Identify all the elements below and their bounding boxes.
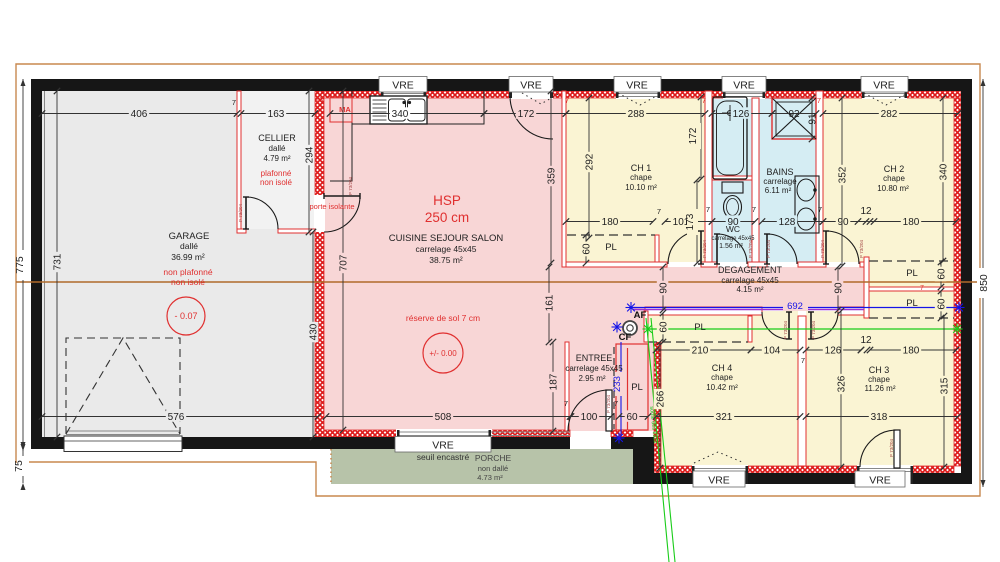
- svg-text:12: 12: [860, 335, 872, 346]
- svg-text:707: 707: [339, 254, 350, 271]
- svg-text:13: 13: [314, 400, 322, 409]
- svg-text:60: 60: [937, 298, 948, 310]
- svg-text:VRE: VRE: [869, 475, 891, 487]
- svg-text:VRE: VRE: [873, 80, 895, 92]
- svg-text:P 73/204: P 73/204: [889, 439, 894, 457]
- svg-text:plafonné: plafonné: [261, 169, 292, 178]
- svg-text:1.56 m²: 1.56 m²: [719, 243, 743, 250]
- svg-text:DEGAGEMENT: DEGAGEMENT: [718, 265, 783, 275]
- svg-text:7: 7: [920, 285, 924, 292]
- svg-text:P 73/204: P 73/204: [748, 240, 753, 258]
- svg-text:294: 294: [305, 146, 316, 163]
- svg-text:282: 282: [881, 109, 898, 120]
- svg-text:60: 60: [626, 412, 638, 423]
- svg-text:128: 128: [779, 217, 796, 228]
- svg-text:CUISINE SEJOUR SALON: CUISINE SEJOUR SALON: [389, 233, 504, 244]
- svg-text:7: 7: [565, 96, 569, 105]
- svg-text:430: 430: [309, 323, 320, 340]
- svg-text:P 73/204: P 73/204: [238, 204, 243, 222]
- svg-text:carrelage 45x45: carrelage 45x45: [416, 244, 477, 254]
- svg-text:288: 288: [628, 109, 645, 120]
- svg-text:173: 173: [685, 213, 696, 230]
- svg-text:13: 13: [315, 95, 323, 104]
- svg-text:318: 318: [871, 412, 888, 423]
- svg-text:321: 321: [716, 412, 733, 423]
- svg-text:11.26 m²: 11.26 m²: [865, 384, 896, 393]
- svg-text:60: 60: [937, 268, 948, 280]
- svg-text:352: 352: [838, 166, 849, 183]
- svg-text:PL: PL: [906, 268, 918, 279]
- svg-text:P 73/204: P 73/204: [859, 240, 864, 258]
- svg-text:6.11 m²: 6.11 m²: [765, 186, 792, 195]
- svg-text:non isolé: non isolé: [260, 178, 293, 187]
- svg-text:315: 315: [940, 377, 951, 394]
- svg-text:172: 172: [688, 127, 699, 144]
- svg-text:340: 340: [392, 109, 409, 120]
- svg-text:P 73/204: P 73/204: [783, 321, 788, 339]
- svg-text:P 73/204: P 73/204: [606, 395, 611, 413]
- svg-text:172: 172: [518, 109, 535, 120]
- svg-text:non dallé: non dallé: [478, 464, 508, 473]
- svg-text:VRE: VRE: [708, 475, 730, 487]
- svg-text:CELLIER: CELLIER: [258, 133, 296, 143]
- svg-text:P 73/204: P 73/204: [820, 240, 825, 258]
- svg-text:7: 7: [770, 96, 774, 105]
- svg-text:MA: MA: [339, 105, 351, 114]
- svg-text:4.15 m²: 4.15 m²: [736, 285, 763, 294]
- svg-text:266: 266: [656, 390, 667, 407]
- svg-text:BAINS: BAINS: [766, 167, 793, 177]
- svg-text:2.95 m²: 2.95 m²: [578, 374, 605, 383]
- svg-text:180: 180: [903, 346, 920, 357]
- svg-text:P 73/204: P 73/204: [811, 321, 816, 339]
- svg-text:75: 75: [13, 460, 25, 472]
- svg-text:CH 2: CH 2: [884, 164, 905, 174]
- svg-text:508: 508: [435, 412, 452, 423]
- svg-text:seuil encastré: seuil encastré: [417, 452, 470, 462]
- svg-text:VRE: VRE: [520, 80, 542, 92]
- svg-text:7: 7: [752, 205, 756, 214]
- svg-text:7: 7: [702, 96, 706, 105]
- svg-text:HSP: HSP: [433, 193, 461, 208]
- svg-text:chape: chape: [711, 373, 733, 382]
- svg-text:réserve de sol 7 cm: réserve de sol 7 cm: [406, 313, 480, 323]
- svg-text:10.42 m²: 10.42 m²: [706, 383, 738, 392]
- svg-text:non isolé: non isolé: [171, 277, 205, 287]
- svg-text:100: 100: [581, 412, 598, 423]
- svg-text:7: 7: [818, 205, 822, 214]
- svg-text:692: 692: [787, 301, 803, 312]
- svg-text:chape: chape: [630, 173, 652, 182]
- svg-text:PL: PL: [694, 322, 706, 333]
- svg-text:CH 4: CH 4: [712, 363, 733, 373]
- svg-text:91: 91: [808, 113, 819, 125]
- svg-text:ENTREE: ENTREE: [576, 353, 613, 363]
- svg-text:850: 850: [978, 274, 990, 292]
- svg-text:38.75 m²: 38.75 m²: [429, 255, 463, 265]
- svg-text:92: 92: [788, 109, 800, 120]
- svg-text:chape: chape: [883, 174, 905, 183]
- svg-text:250 cm: 250 cm: [425, 210, 469, 225]
- svg-text:326: 326: [837, 375, 848, 392]
- svg-text:292: 292: [585, 153, 596, 170]
- svg-text:210: 210: [692, 346, 709, 357]
- svg-text:7: 7: [706, 205, 710, 214]
- svg-text:126: 126: [825, 346, 842, 357]
- svg-text:P 73/204: P 73/204: [766, 240, 771, 258]
- svg-text:163: 163: [268, 109, 285, 120]
- svg-text:12: 12: [860, 206, 872, 217]
- svg-text:VRE: VRE: [733, 80, 755, 92]
- svg-text:chape: chape: [868, 375, 890, 384]
- svg-text:60: 60: [659, 321, 670, 333]
- svg-text:carrelage 45x45: carrelage 45x45: [565, 364, 623, 373]
- svg-text:10.10 m²: 10.10 m²: [625, 183, 657, 192]
- svg-text:carrelage: carrelage: [763, 177, 797, 186]
- svg-text:7: 7: [614, 399, 618, 408]
- svg-text:VRE: VRE: [392, 80, 414, 92]
- svg-text:359: 359: [547, 167, 558, 184]
- svg-text:187: 187: [549, 373, 560, 390]
- svg-text:+/- 0.00: +/- 0.00: [429, 349, 457, 358]
- svg-text:7: 7: [817, 96, 821, 105]
- svg-text:126: 126: [733, 109, 750, 120]
- svg-text:4.79 m²: 4.79 m²: [263, 154, 290, 163]
- svg-text:P 73/204: P 73/204: [702, 240, 707, 258]
- svg-text:7: 7: [801, 356, 805, 365]
- svg-text:233: 233: [612, 376, 623, 392]
- svg-text:PL: PL: [631, 382, 643, 393]
- svg-text:775: 775: [14, 256, 26, 274]
- svg-text:4.73 m²: 4.73 m²: [477, 473, 503, 482]
- svg-text:731: 731: [53, 253, 64, 270]
- svg-text:- 0.07: - 0.07: [174, 311, 197, 321]
- svg-text:180: 180: [903, 217, 920, 228]
- svg-text:dallé: dallé: [269, 144, 286, 153]
- svg-text:104: 104: [764, 346, 781, 357]
- svg-text:10.80 m²: 10.80 m²: [877, 184, 909, 193]
- svg-text:porte isolante: porte isolante: [309, 202, 354, 211]
- svg-text:P 73/204: P 73/204: [348, 177, 353, 195]
- svg-text:WC: WC: [726, 224, 740, 234]
- svg-text:PL: PL: [906, 298, 918, 309]
- svg-text:161: 161: [545, 294, 556, 311]
- svg-text:7: 7: [564, 399, 568, 408]
- svg-text:36.99 m²: 36.99 m²: [171, 252, 205, 262]
- svg-text:dallé: dallé: [180, 241, 198, 251]
- svg-text:576: 576: [168, 412, 185, 423]
- svg-text:90: 90: [659, 282, 670, 294]
- svg-text:VRE: VRE: [626, 80, 648, 92]
- svg-text:340: 340: [939, 163, 950, 180]
- svg-text:AF: AF: [634, 310, 647, 321]
- svg-text:PORCHE: PORCHE: [475, 453, 512, 463]
- svg-text:180: 180: [602, 217, 619, 228]
- svg-text:60: 60: [582, 243, 593, 255]
- svg-text:non plafonné: non plafonné: [163, 267, 212, 277]
- svg-text:CH 3: CH 3: [869, 365, 890, 375]
- svg-text:90: 90: [837, 217, 849, 228]
- svg-text:CH 1: CH 1: [631, 163, 652, 173]
- svg-text:PL: PL: [605, 242, 617, 253]
- svg-text:406: 406: [131, 109, 148, 120]
- svg-text:CF: CF: [619, 332, 632, 343]
- svg-text:VRE: VRE: [432, 440, 454, 452]
- svg-text:7: 7: [657, 207, 661, 216]
- svg-text:90: 90: [834, 282, 845, 294]
- svg-text:7: 7: [232, 98, 236, 107]
- svg-text:carrelage 45x45: carrelage 45x45: [721, 276, 779, 285]
